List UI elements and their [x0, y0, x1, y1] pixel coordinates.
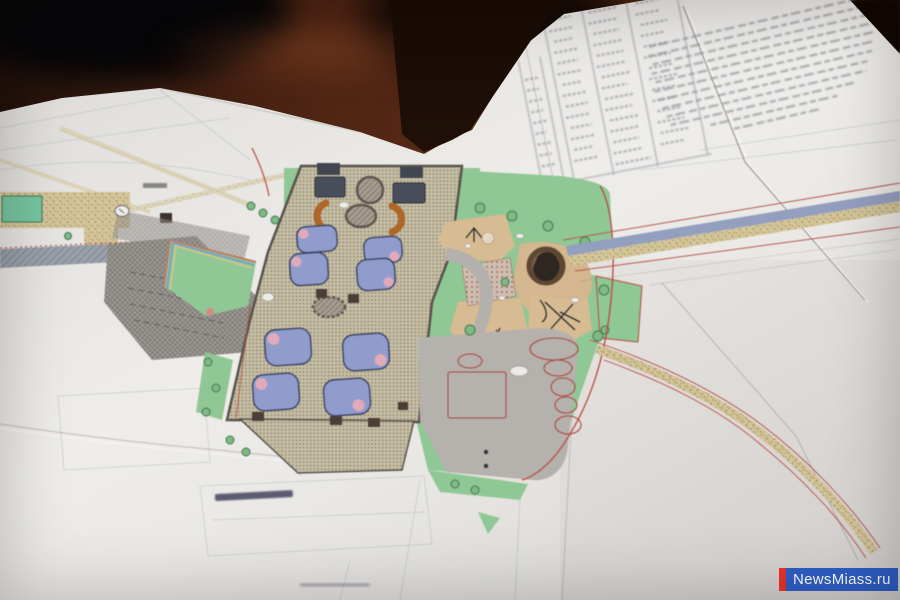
bench-oval: [499, 296, 505, 300]
label-oval: [510, 366, 528, 376]
watermark-red-bar: [779, 568, 786, 591]
green-court: [2, 196, 42, 222]
post-dot: [484, 450, 488, 454]
planter-dark: [368, 418, 380, 427]
planter-dark: [330, 416, 342, 425]
pink-blob: [206, 308, 214, 316]
left-site-area: [0, 183, 258, 360]
fountain-circle: [346, 205, 376, 227]
flower-bed: [323, 377, 371, 416]
notes-text-lines: [645, 0, 897, 144]
planter-dark: [252, 412, 264, 421]
bench-oval: [465, 244, 471, 248]
photo-scene: NewsMiass.ru: [0, 0, 900, 600]
bench-oval: [516, 234, 524, 239]
watermark-text: NewsMiass.ru: [786, 568, 898, 591]
fountain-circle: [357, 177, 383, 203]
flower-bed: [289, 252, 329, 287]
flower-bed: [264, 327, 312, 366]
planter-dark: [398, 402, 408, 410]
flower-bed: [252, 372, 300, 411]
label-oval: [262, 293, 274, 301]
bench-oval: [571, 298, 579, 303]
watermark-badge: NewsMiass.ru: [779, 568, 898, 591]
flower-bed: [296, 225, 338, 254]
label-oval: [339, 202, 349, 208]
promenade-paving-south: [240, 419, 414, 473]
small-label-blur: [143, 183, 167, 188]
planter-dark: [316, 289, 327, 298]
pavilion-rect: [400, 167, 423, 178]
post-dot: [484, 464, 488, 468]
pavilion-rect: [315, 177, 345, 197]
flower-bed: [342, 332, 390, 371]
sand-circle: [482, 232, 494, 244]
planter-dark: [348, 294, 359, 303]
asphalt-road: [566, 191, 900, 256]
lawn-patch: [478, 512, 500, 534]
fountain-circle-scalloped: [313, 297, 345, 317]
pavilion-rect: [317, 163, 340, 175]
pavilion-rect: [393, 183, 425, 203]
plaza: [418, 328, 581, 480]
